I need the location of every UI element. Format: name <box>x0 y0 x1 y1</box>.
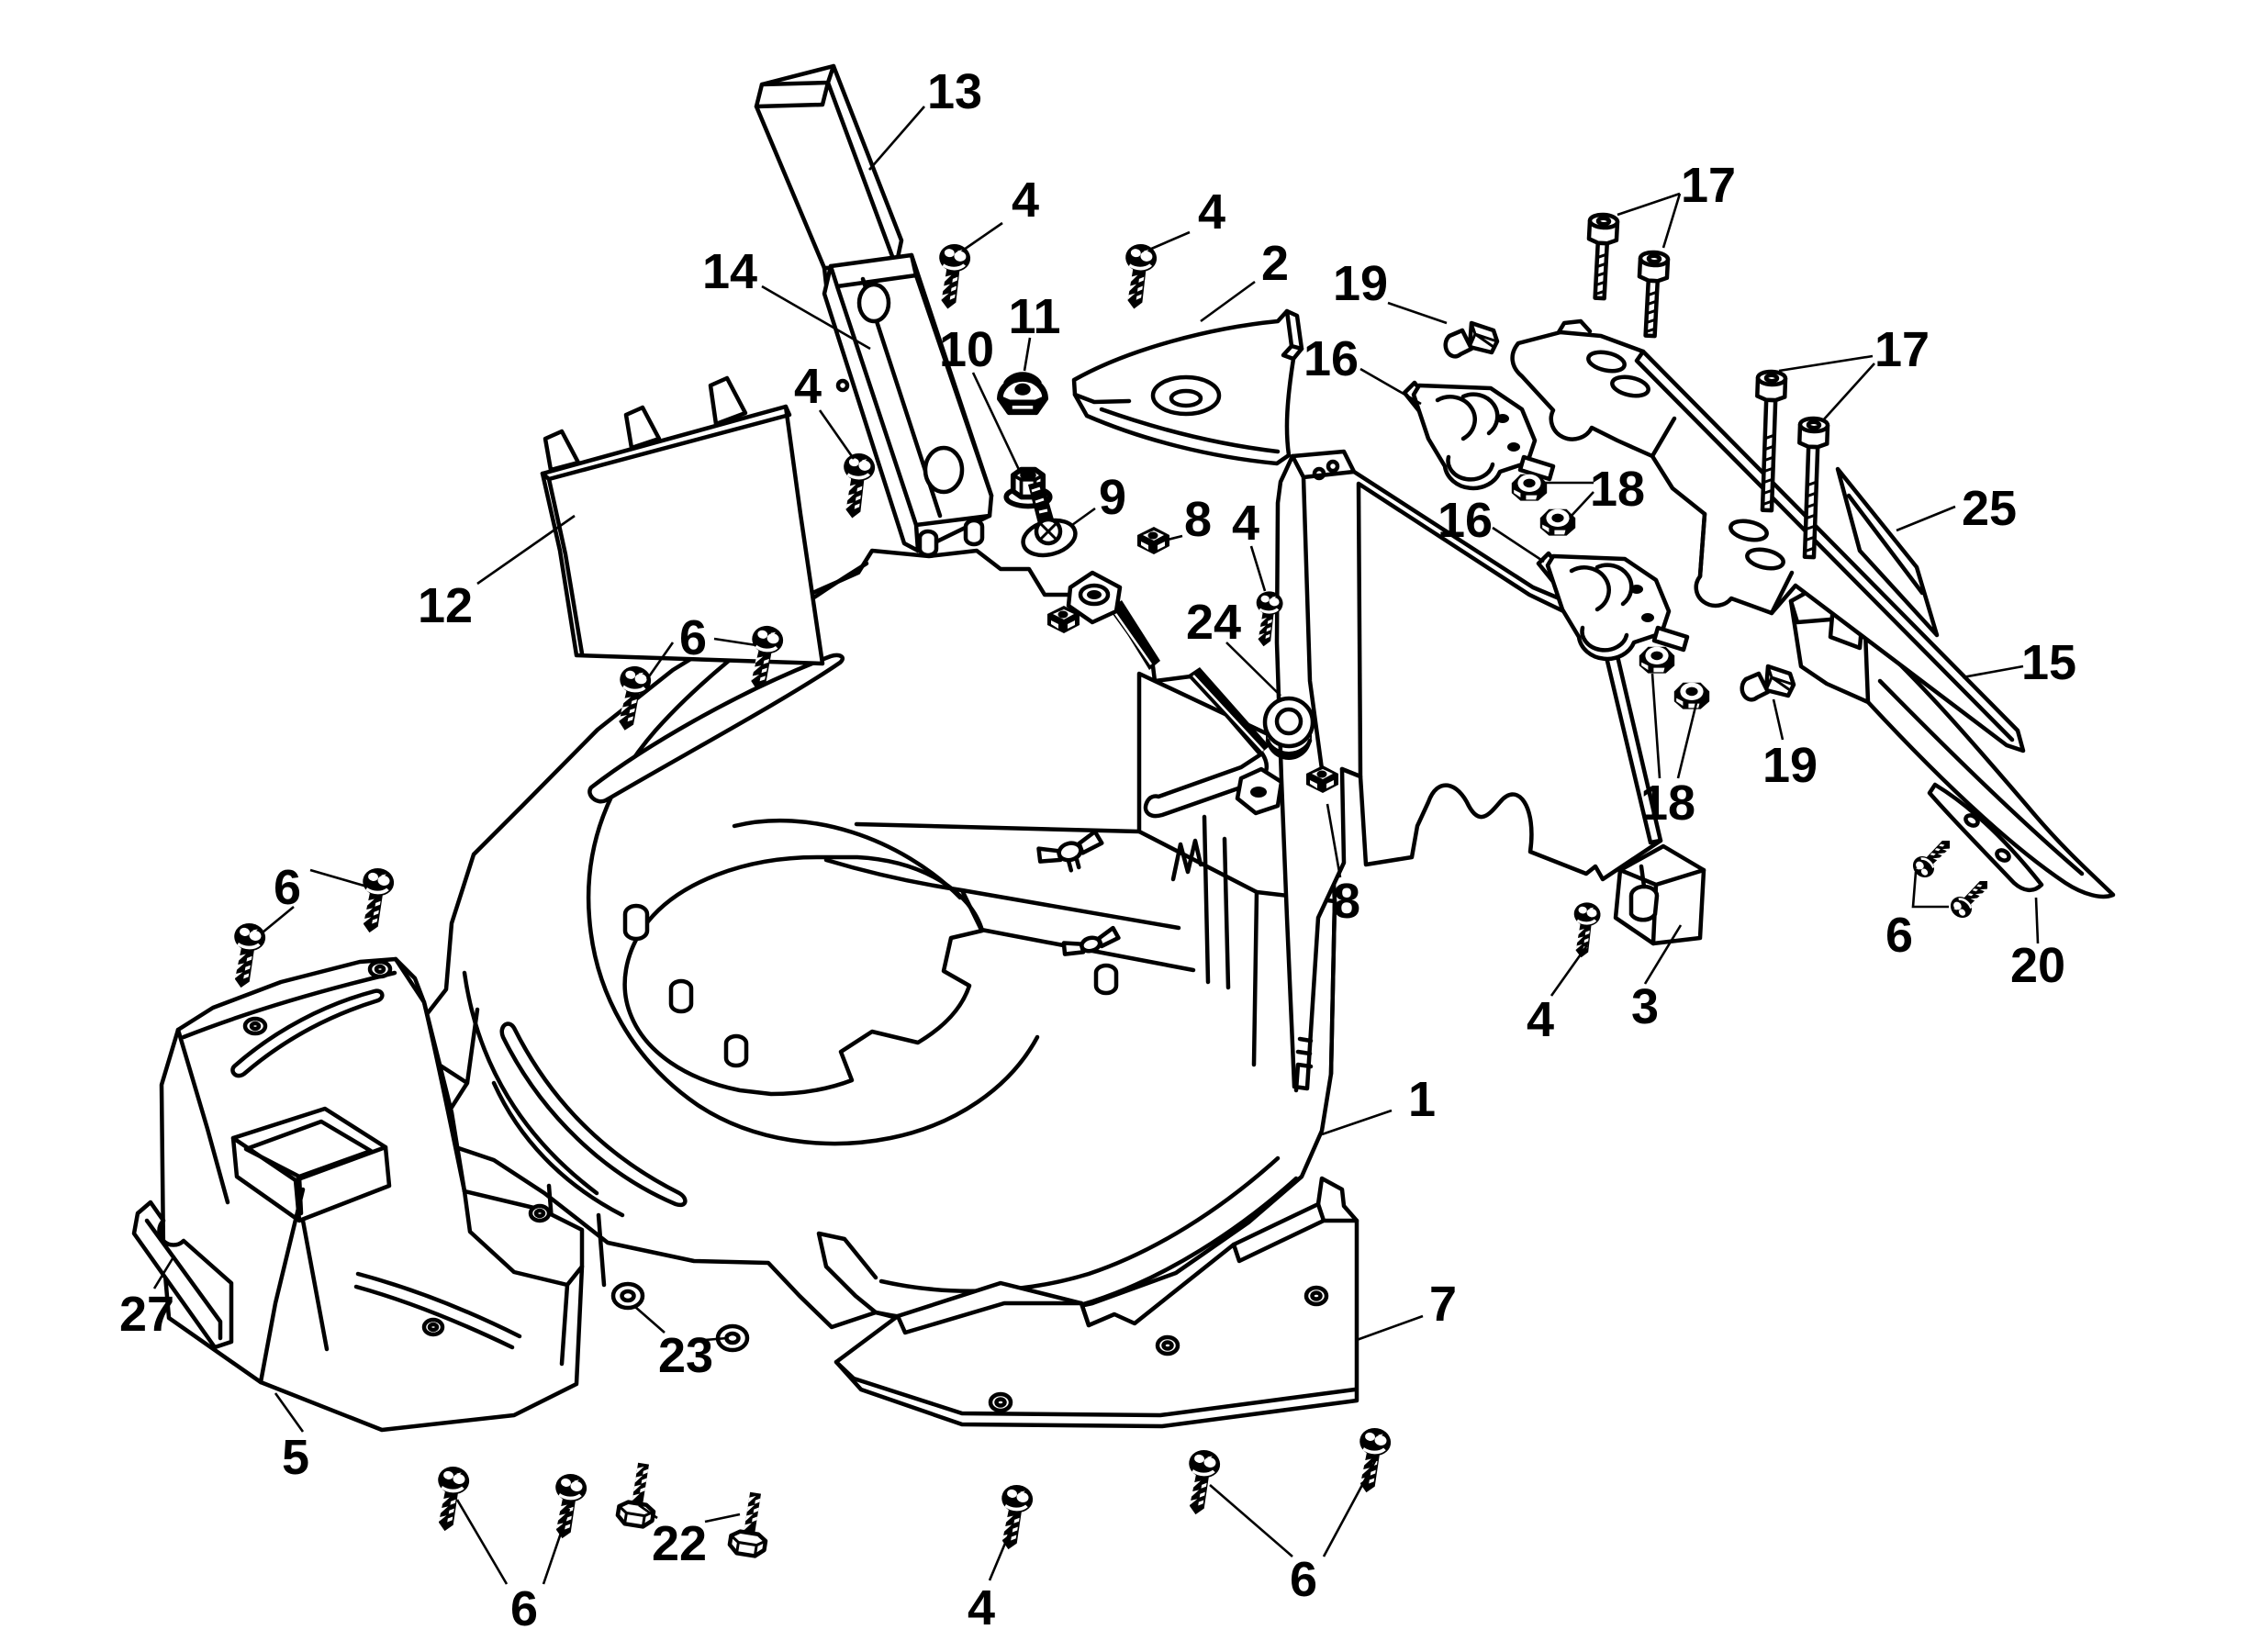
svg-text:6: 6 <box>679 610 707 665</box>
svg-text:4: 4 <box>1012 173 1039 228</box>
svg-text:18: 18 <box>1640 776 1695 831</box>
svg-text:13: 13 <box>927 64 982 119</box>
svg-text:8: 8 <box>1333 874 1360 929</box>
svg-text:16: 16 <box>1438 493 1493 548</box>
svg-text:17: 17 <box>1681 158 1736 213</box>
svg-text:16: 16 <box>1303 331 1359 386</box>
svg-text:5: 5 <box>282 1430 309 1485</box>
svg-text:6: 6 <box>1885 908 1913 963</box>
svg-text:19: 19 <box>1762 738 1818 793</box>
svg-text:12: 12 <box>418 578 473 633</box>
svg-text:6: 6 <box>1290 1552 1317 1607</box>
svg-text:11: 11 <box>1008 289 1060 344</box>
svg-text:27: 27 <box>119 1287 174 1342</box>
svg-text:18: 18 <box>1590 462 1645 517</box>
svg-text:17: 17 <box>1874 322 1930 377</box>
svg-text:3: 3 <box>1631 979 1659 1034</box>
svg-text:6: 6 <box>510 1581 538 1636</box>
svg-text:7: 7 <box>1429 1277 1457 1332</box>
svg-text:19: 19 <box>1333 256 1388 311</box>
svg-text:4: 4 <box>968 1580 995 1635</box>
svg-text:2: 2 <box>1261 236 1289 291</box>
svg-text:25: 25 <box>1962 481 2017 536</box>
svg-text:14: 14 <box>702 244 757 299</box>
svg-text:6: 6 <box>274 860 301 915</box>
svg-text:4: 4 <box>794 359 822 414</box>
svg-text:4: 4 <box>1527 992 1554 1047</box>
svg-text:9: 9 <box>1099 470 1126 525</box>
svg-text:22: 22 <box>652 1516 707 1571</box>
svg-text:4: 4 <box>1232 496 1259 551</box>
svg-text:8: 8 <box>1184 492 1212 547</box>
svg-text:23: 23 <box>658 1328 713 1383</box>
svg-text:20: 20 <box>2010 938 2065 993</box>
svg-text:24: 24 <box>1186 595 1241 650</box>
svg-text:10: 10 <box>939 322 994 377</box>
svg-text:15: 15 <box>2021 635 2076 690</box>
svg-text:4: 4 <box>1198 184 1225 240</box>
svg-text:1: 1 <box>1408 1072 1436 1127</box>
